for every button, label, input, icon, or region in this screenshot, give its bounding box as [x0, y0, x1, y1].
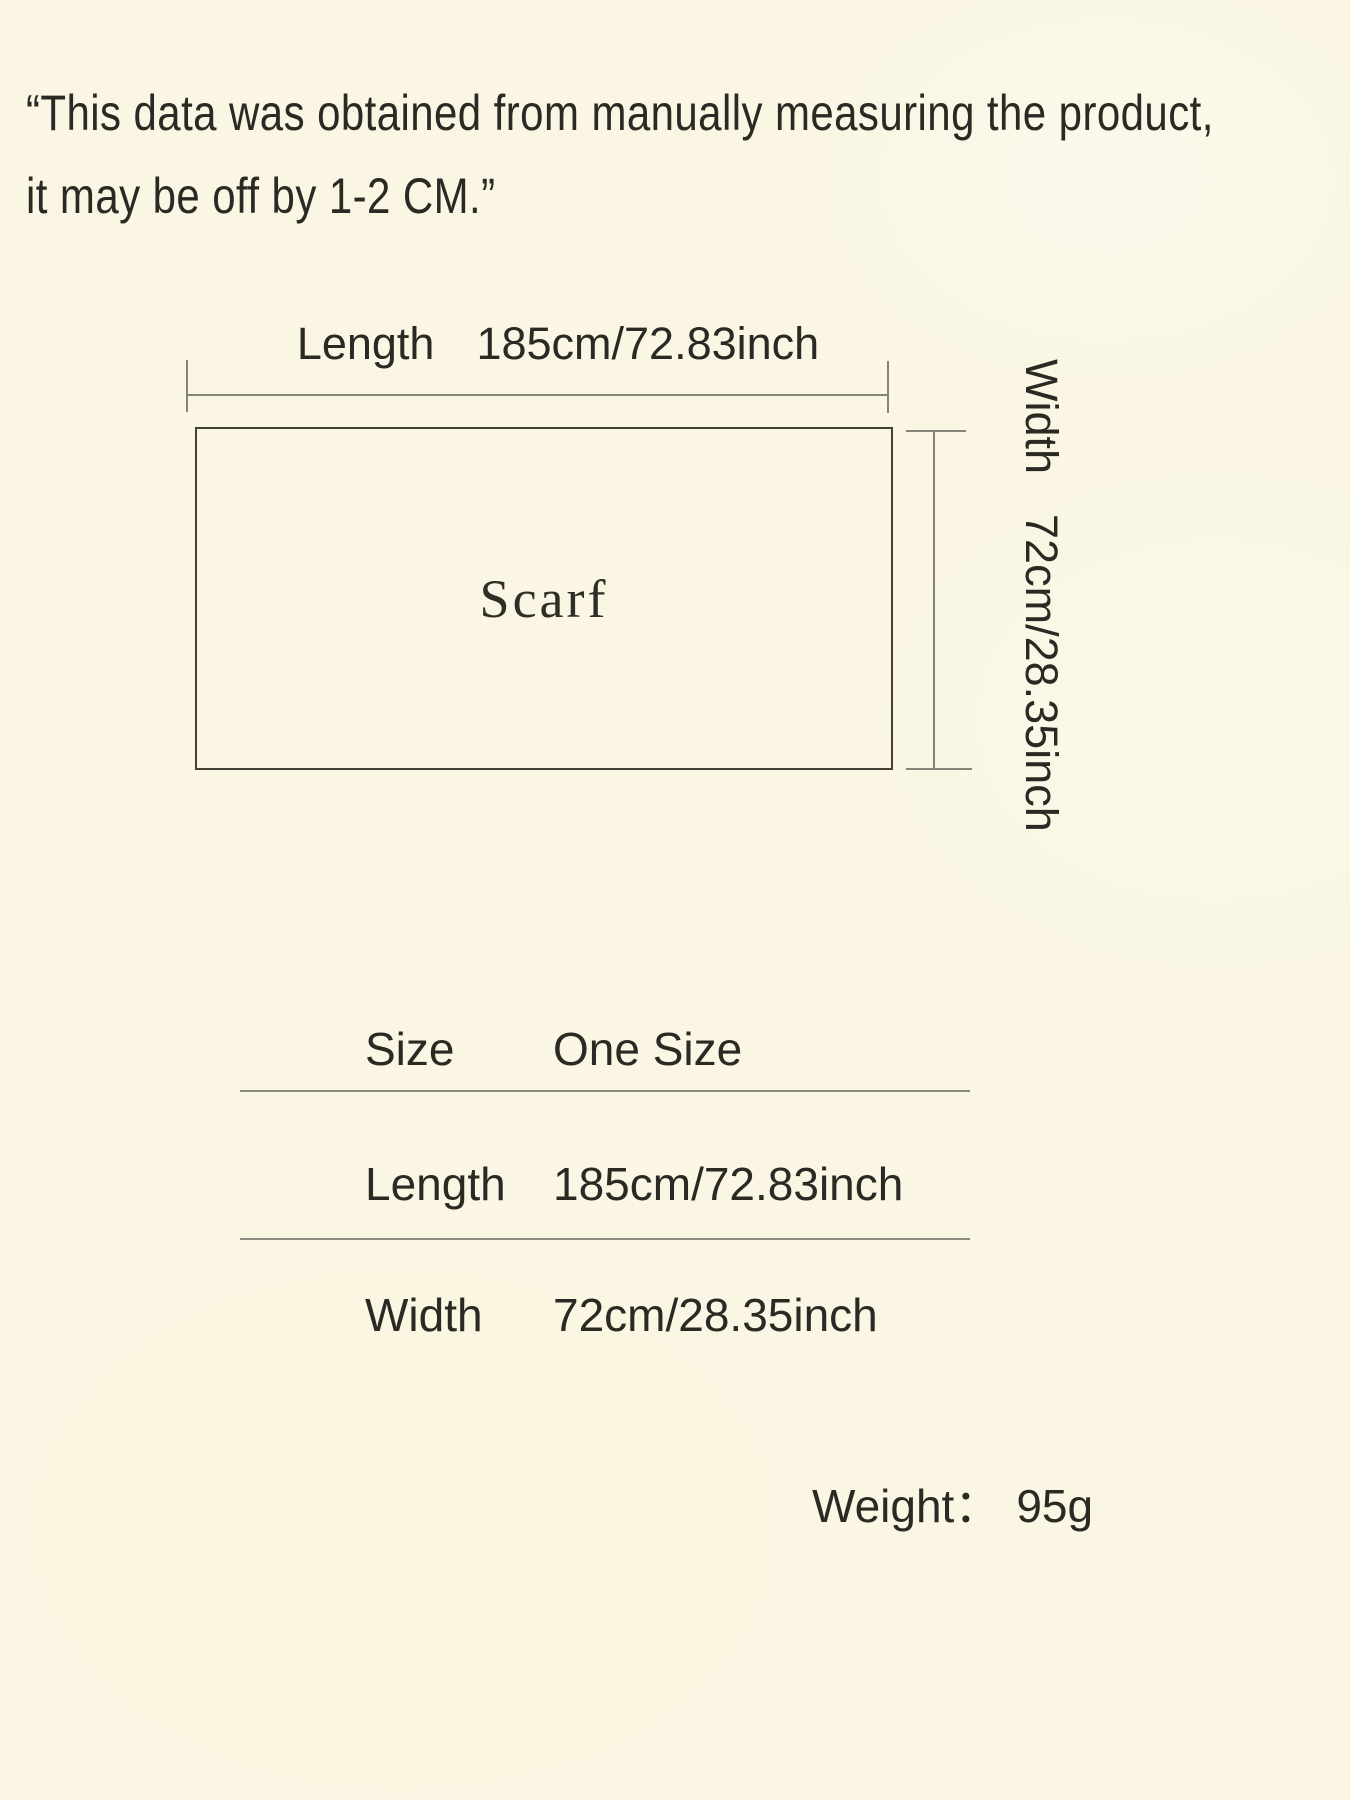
scarf-label: Scarf: [480, 568, 609, 630]
weight-value: 95g: [1016, 1480, 1093, 1532]
table-divider-1: [240, 1090, 970, 1092]
scarf-outline-rectangle: Scarf: [195, 427, 893, 770]
width-dimension-tick-bottom: [906, 768, 972, 770]
table-divider-2: [240, 1238, 970, 1240]
width-label: Width: [1016, 359, 1067, 474]
length-row-label: Length: [365, 1157, 506, 1211]
length-dimension-label: Length185cm/72.83inch: [200, 318, 916, 370]
width-value: 72cm/28.35inch: [1016, 514, 1067, 832]
width-row-label: Width: [365, 1288, 483, 1342]
table-row-width: Width 72cm/28.35inch: [365, 1288, 985, 1342]
length-dimension-tick-right: [887, 361, 889, 413]
weight-label: Weight：: [812, 1480, 1000, 1532]
disclaimer-line-2: it may be off by 1-2 CM.”: [26, 155, 1214, 238]
table-row-length: Length 185cm/72.83inch: [365, 1157, 985, 1211]
length-dimension-tick-left: [186, 360, 188, 412]
length-value: 185cm/72.83inch: [476, 318, 819, 369]
width-dimension-label: Width72cm/28.35inch: [1013, 359, 1067, 867]
disclaimer-line-1: “This data was obtained from manually me…: [26, 72, 1214, 155]
width-dimension-line: [933, 431, 935, 770]
size-row-label: Size: [365, 1022, 454, 1076]
length-row-value: 185cm/72.83inch: [553, 1157, 903, 1211]
table-row-size: Size One Size: [365, 1022, 985, 1076]
weight-text: Weight：95g: [812, 1470, 1093, 1536]
disclaimer-text: “This data was obtained from manually me…: [26, 72, 1214, 238]
length-label: Length: [297, 318, 435, 369]
width-dimension-tick-top: [906, 430, 966, 432]
length-dimension-line: [187, 394, 889, 396]
background-texture: [0, 0, 1350, 1800]
size-row-value: One Size: [553, 1022, 742, 1076]
width-row-value: 72cm/28.35inch: [553, 1288, 878, 1342]
